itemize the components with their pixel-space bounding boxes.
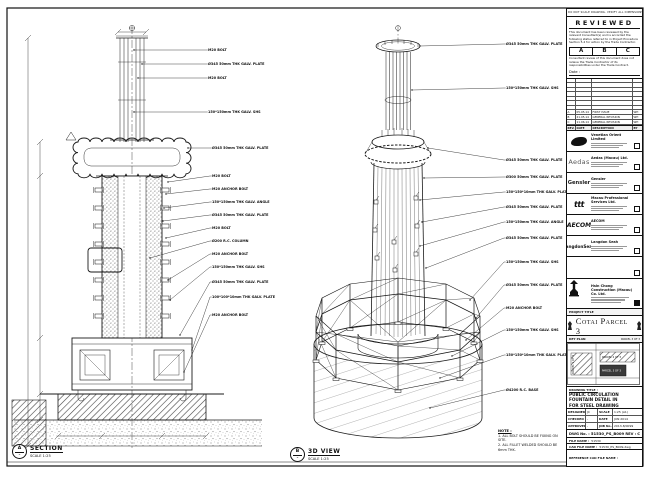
stakeholder-blocks: Venetian Orient LimitedAedasAedas (Macau… <box>567 131 642 257</box>
key-plan-bar: KEY PLAN PARCEL 3 OF 3 <box>567 336 642 343</box>
note-item: 2. ALL FILLET WELDED SHOULD BE 6mm THK. <box>498 443 566 452</box>
stakeholder-name: Langdon Seah <box>591 241 636 245</box>
approval-checkbox <box>634 270 641 277</box>
callout-label: Ø4200 R.C. BASE <box>506 387 539 392</box>
review-stamp-para2: Consultant review of this document does … <box>569 57 640 68</box>
callout-label: Ø345 50mm THK GALV. PLATE <box>212 279 269 284</box>
key-plan-map: PARCEL 1 OF 3 PARCEL 2 OF 3 PARCEL 3 OF … <box>567 343 640 385</box>
contractor-block: Hsin Chong Construction (Macau) Co. Ltd. <box>567 279 642 309</box>
info-table: DESIGNEDJCSCALE1:25 (A1)CHECKED-DATEJUN … <box>567 409 642 430</box>
stakeholder-name: Gensler <box>591 178 636 182</box>
disclaimer-strip: DO NOT SCALE DRAWING. VERIFY ALL DIMENSI… <box>567 9 642 17</box>
drawing-title-block: DRAWING TITLE : PUBLIC CIRCULATION FOUNT… <box>567 387 642 409</box>
stakeholder-block-aedas: AedasAedas (Macau) Ltd. <box>567 152 642 173</box>
info-row: CHECKED-DATEJUN 2014 <box>567 416 642 423</box>
aecom-logo: AECOM <box>567 222 591 229</box>
ref-cad-file-row: REFERENCE CAD FILE NAME : <box>567 450 642 466</box>
fleur-ornament-icon <box>567 321 573 330</box>
callout-label: M20 BOLT <box>212 174 231 178</box>
cad-drawing-canvas: M20 BOLTØ345 50mm THK GALV. PLATEM20 BOL… <box>0 0 650 488</box>
fleur-ornament-icon <box>636 321 642 330</box>
stakeholder-name: Macau Professional Services Ltd. <box>591 197 636 204</box>
callout-label: M20 ANCHOR BOLT <box>212 313 249 317</box>
dwg-number-row: DWG No. : 51530_PS_B009 REV : C <box>567 430 642 438</box>
review-status-c: C <box>617 48 639 55</box>
callout-label: M20 BOLT <box>208 76 227 80</box>
contractor-name: Hsin Chong Construction (Macau) Co. Ltd. <box>591 284 636 296</box>
key-plan: PARCEL 1 OF 3 PARCEL 2 OF 3 PARCEL 3 OF … <box>567 343 642 387</box>
section-view <box>12 25 262 449</box>
notes-block: NOTE : 1. ALL BOLT SHOULD BE FIXING ON S… <box>498 429 566 452</box>
dwg-rev-value: C <box>637 431 640 436</box>
info-row: DESIGNEDJCSCALE1:25 (A1) <box>567 409 642 416</box>
stakeholder-block-langdonseah: LangdonSeahLangdon Seah <box>567 236 642 257</box>
section-view-title: SECTION <box>30 445 63 453</box>
project-title-bar: PROJECT TITLE <box>567 309 642 316</box>
callout-label: 150*150mm THK GALV. ANGLE <box>212 200 270 204</box>
stakeholder-name: AECOM <box>591 220 636 224</box>
callout-label: 150*150mm THK GALV. ANGLE <box>506 220 564 224</box>
section-bubble: A – <box>12 444 27 459</box>
drawing-title-line3: FOR STEEL DRAWING <box>569 403 640 408</box>
key-plan-parcel1-label: PARCEL 1 OF 3 <box>571 355 575 374</box>
dwg-rev-label: REV : <box>625 432 636 436</box>
callout-label: 150*150mm THK GALV. SHS <box>212 265 265 269</box>
file-name-label: FILE NAME : <box>569 439 589 443</box>
iso-bubble-sheet: – <box>293 455 302 460</box>
cad-file-label: CAD FILE NAME : <box>569 445 597 449</box>
callout-label: M20 ANCHOR BOLT <box>212 187 249 191</box>
review-status-row: A B C <box>569 47 640 56</box>
key-plan-parcel2-label: PARCEL 2 OF 3 <box>602 355 621 359</box>
callout-label: Ø345 50mm THK GALV. PLATE <box>506 157 563 162</box>
gensler-logo: Gensler <box>567 180 591 186</box>
iso-view-tag: B – 3D VIEW SCALE 1:25 <box>290 447 340 462</box>
callout-label: Ø300 50mm THK GALV. PLATE <box>506 174 563 179</box>
callout-label: 150*150mm THK GALV. SHS <box>506 86 559 90</box>
callout-label: Ø345 50mm THK GALV. PLATE <box>208 61 265 66</box>
callout-label: Ø345 50mm THK GALV. PLATE <box>506 41 563 46</box>
review-status-a: A <box>570 48 593 55</box>
langdonseah-logo: LangdonSeah <box>567 244 591 249</box>
revision-header-row: REV.DATEDESCRIPTIONBY <box>567 125 642 130</box>
stakeholder-block-aecom: AECOMAECOM <box>567 215 642 236</box>
stakeholder-block-venetian: Venetian Orient Limited <box>567 131 642 152</box>
project-title-text: Cotai Parcel 3 <box>576 316 633 336</box>
stakeholder-block-ttt: tttMacau Professional Services Ltd. <box>567 194 642 215</box>
key-plan-parcel-label: PARCEL 3 OF 3 <box>621 338 640 341</box>
callout-label: 150*150mm THK GALV. SHS <box>506 328 559 332</box>
dwg-number-label: DWG No. : <box>569 432 590 436</box>
iso-callouts: Ø345 50mm THK GALV. PLATE150*150mm THK G… <box>411 41 569 408</box>
file-name-value: 51530 <box>591 439 601 443</box>
callout-label: 150*150mm THK GALV. SHS <box>506 260 559 264</box>
dwg-number-value: 51530_PS_B009 <box>591 431 624 436</box>
stakeholder-block-gensler: GenslerGensler <box>567 173 642 194</box>
iso-view-title: 3D VIEW <box>308 448 340 456</box>
key-plan-bar-label: KEY PLAN <box>569 337 586 341</box>
stakeholder-checkbox <box>634 185 641 192</box>
stakeholder-checkbox <box>634 248 641 255</box>
callout-label: Ø345 50mm THK GALV. PLATE <box>506 235 563 240</box>
iso-bubble: B – <box>290 447 305 462</box>
callout-label: 150*150*10mm THK GALV. PLATE <box>506 353 570 357</box>
stakeholder-checkbox <box>634 164 641 171</box>
title-block: DO NOT SCALE DRAWING. VERIFY ALL DIMENSI… <box>566 8 643 467</box>
project-title-bar-label: PROJECT TITLE <box>569 310 594 314</box>
callout-label: Ø200 R.C. COLUMN <box>212 238 249 243</box>
ttt-logo: ttt <box>567 200 591 209</box>
callout-label: 100*100*10mm THK GALV. PLATE <box>212 295 276 299</box>
callout-label: 150*150*10mm THK GALV. PLATE <box>506 190 570 194</box>
review-status-b: B <box>593 48 616 55</box>
stakeholder-checkbox <box>634 143 641 150</box>
cad-file-value: 51530_PS_B009.dwg <box>599 445 630 449</box>
stakeholder-checkbox <box>634 206 641 213</box>
drawing-sheet: M20 BOLTØ345 50mm THK GALV. PLATEM20 BOL… <box>0 0 650 488</box>
section-view-scale: SCALE 1:25 <box>30 454 63 458</box>
iso-view <box>313 26 483 438</box>
callout-label: M20 BOLT <box>212 226 231 230</box>
key-plan-parcel3-label: PARCEL 3 OF 3 <box>602 369 621 373</box>
callout-label: Ø345 50mm THK GALV. PLATE <box>506 204 563 209</box>
aedas-logo: Aedas <box>567 158 591 166</box>
stakeholder-name: Aedas (Macau) Ltd. <box>591 157 636 161</box>
section-view-tag: A – SECTION SCALE 1:25 <box>12 444 63 459</box>
info-row: APPROVED-JOB No.2013-8/0099 <box>567 423 642 429</box>
callout-label: 150*150mm THK GALV. SHS <box>208 110 261 114</box>
callout-label: M20 ANCHOR BOLT <box>212 252 249 256</box>
section-bubble-sheet: – <box>15 452 24 457</box>
venetian-logo <box>567 137 591 146</box>
contractor-checkbox <box>634 300 641 307</box>
review-stamp: REVIEWED This document has been reviewed… <box>567 17 642 79</box>
review-stamp-title: REVIEWED <box>569 18 640 29</box>
empty-approval-block <box>567 257 642 279</box>
ref-cad-file-label: REFERENCE CAD FILE NAME : <box>569 456 618 460</box>
callout-label: Ø345 50mm THK GALV. PLATE <box>212 145 269 150</box>
stakeholder-checkbox <box>634 227 641 234</box>
note-item: 1. ALL BOLT SHOULD BE FIXING ON SITE. <box>498 434 566 443</box>
iso-view-scale: SCALE 1:25 <box>308 457 340 461</box>
callout-label: M20 ANCHOR BOLT <box>506 306 543 310</box>
callout-label: Ø345 50mm THK GALV. PLATE <box>212 212 269 217</box>
contractor-logo-icon <box>567 279 581 297</box>
review-date-line: Date : <box>569 70 640 76</box>
revision-table: A05.05.14FIRST ISSUEWHB21.05.14GENERAL R… <box>567 79 642 131</box>
callout-label: Ø345 50mm THK GALV. PLATE <box>506 282 563 287</box>
callout-label: M20 BOLT <box>208 48 227 52</box>
stakeholder-name: Venetian Orient Limited <box>591 134 636 141</box>
review-stamp-para1: This document has been reviewed by the r… <box>569 31 640 46</box>
project-title: Cotai Parcel 3 <box>567 316 642 336</box>
